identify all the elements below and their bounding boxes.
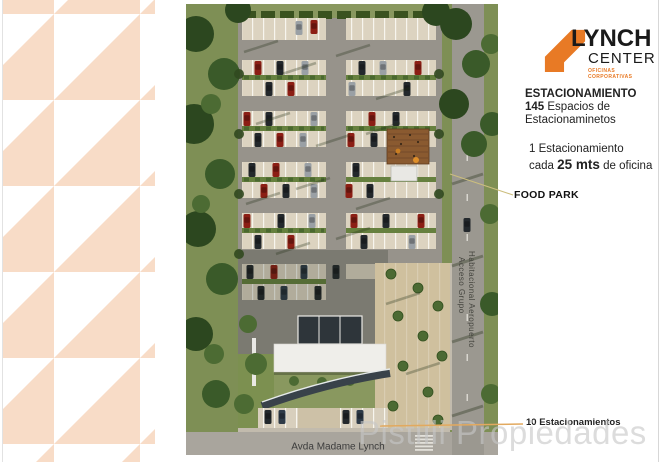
page-right-border xyxy=(658,0,659,462)
street-label-side-line1: Acceso Grupo xyxy=(457,257,466,314)
watermark: Pistilli Propiedades xyxy=(358,414,647,452)
lynch-center-logo: LYNCH CENTER OFICINAS CORPORATIVAS xyxy=(543,25,653,85)
info-heading: ESTACIONAMIENTO xyxy=(525,88,660,101)
food-park-label: FOOD PARK xyxy=(514,189,579,201)
flyer-page: Avda Madame Lynch Acceso Grupo Habitacio… xyxy=(0,0,666,462)
ratio-line1: 1 Estacionamiento xyxy=(529,141,664,157)
parking-info: ESTACIONAMIENTO 145 Espacios de Estacion… xyxy=(525,88,660,127)
logo-title: LYNCH xyxy=(571,25,651,53)
info-spaces2: Estacionaminetos xyxy=(525,114,660,127)
white-roof-slab xyxy=(274,344,386,372)
ratio-line2: cada 25 mts de oficina xyxy=(529,157,664,174)
houndstooth-pattern xyxy=(3,0,155,462)
parking-ratio: 1 Estacionamiento cada 25 mts de oficina xyxy=(529,141,664,174)
logo-tagline: OFICINAS CORPORATIVAS xyxy=(588,68,632,80)
info-spaces: 145 Espacios de xyxy=(525,101,660,114)
street-label-side-line2: Habitacional Aeropuerto xyxy=(467,251,476,348)
logo-subtitle: CENTER xyxy=(588,50,656,67)
site-plan-render: Avda Madame Lynch Acceso Grupo Habitacio… xyxy=(186,4,498,455)
